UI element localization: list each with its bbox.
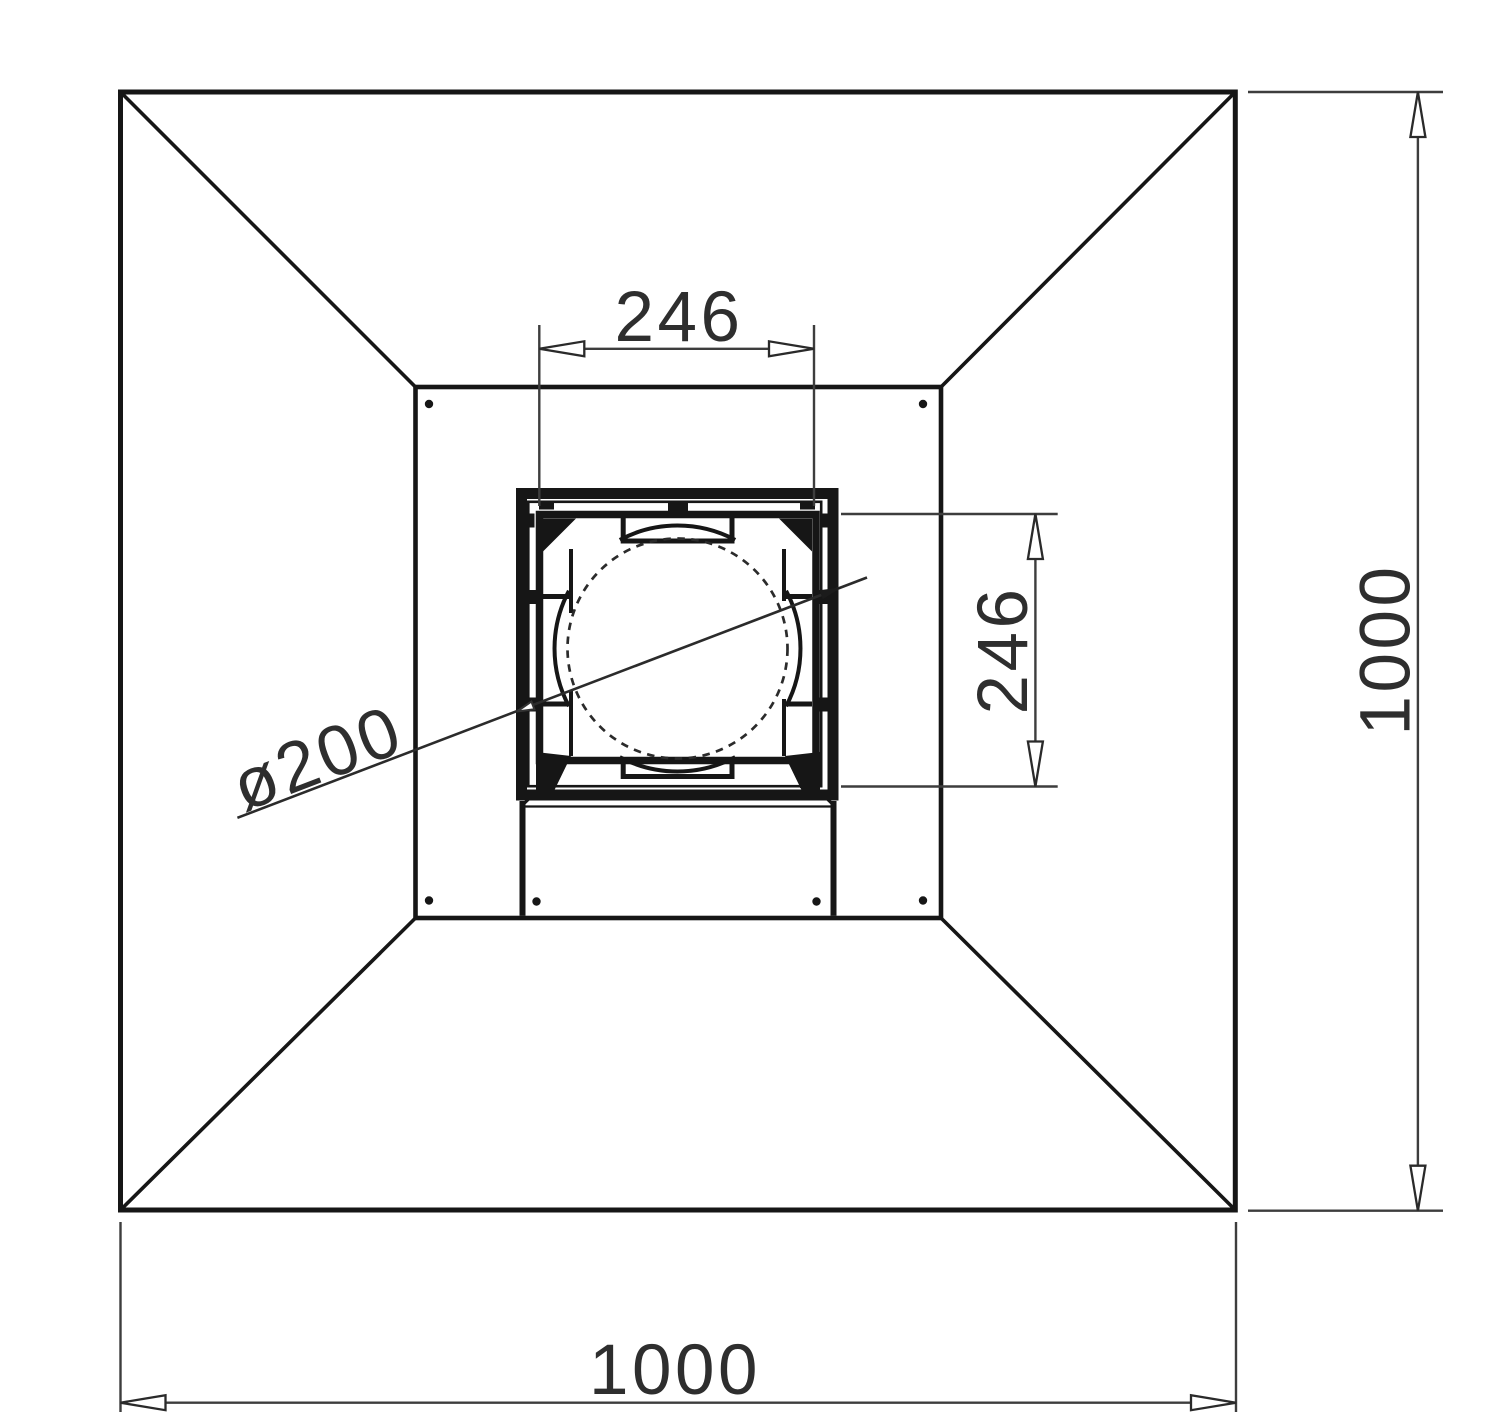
svg-text:1000: 1000 [589,1331,761,1410]
svg-text:246: 246 [615,278,744,357]
svg-text:1000: 1000 [1347,564,1426,736]
svg-text:246: 246 [964,586,1043,715]
